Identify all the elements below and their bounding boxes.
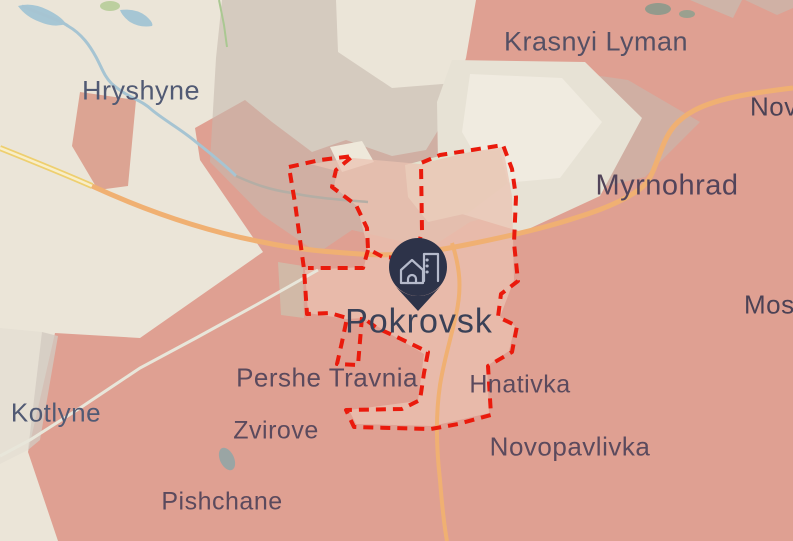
label-pokrovsk: Pokrovsk [345, 303, 493, 342]
tree-blob-1 [645, 3, 671, 15]
tree-blob-2 [679, 10, 695, 18]
label-pershe-travnia: Pershe Travnia [236, 363, 418, 394]
label-mos-clipped: Mos [744, 290, 793, 321]
label-hnativka: Hnativka [469, 371, 570, 400]
label-kotlyne: Kotlyne [11, 398, 101, 429]
label-nov-clipped: Nov [750, 92, 793, 123]
label-pishchane: Pishchane [161, 488, 282, 517]
label-zvirove: Zvirove [233, 417, 318, 446]
label-novopavlivka: Novopavlivka [490, 432, 651, 463]
label-hryshyne: Hryshyne [82, 76, 200, 107]
map-viewport[interactable]: Hryshyne Krasnyi Lyman Nov Myrnohrad Mos… [0, 0, 793, 541]
label-myrnohrad: Myrnohrad [595, 170, 738, 203]
green-patch [100, 1, 120, 11]
label-krasnyi-lyman: Krasnyi Lyman [504, 27, 688, 58]
